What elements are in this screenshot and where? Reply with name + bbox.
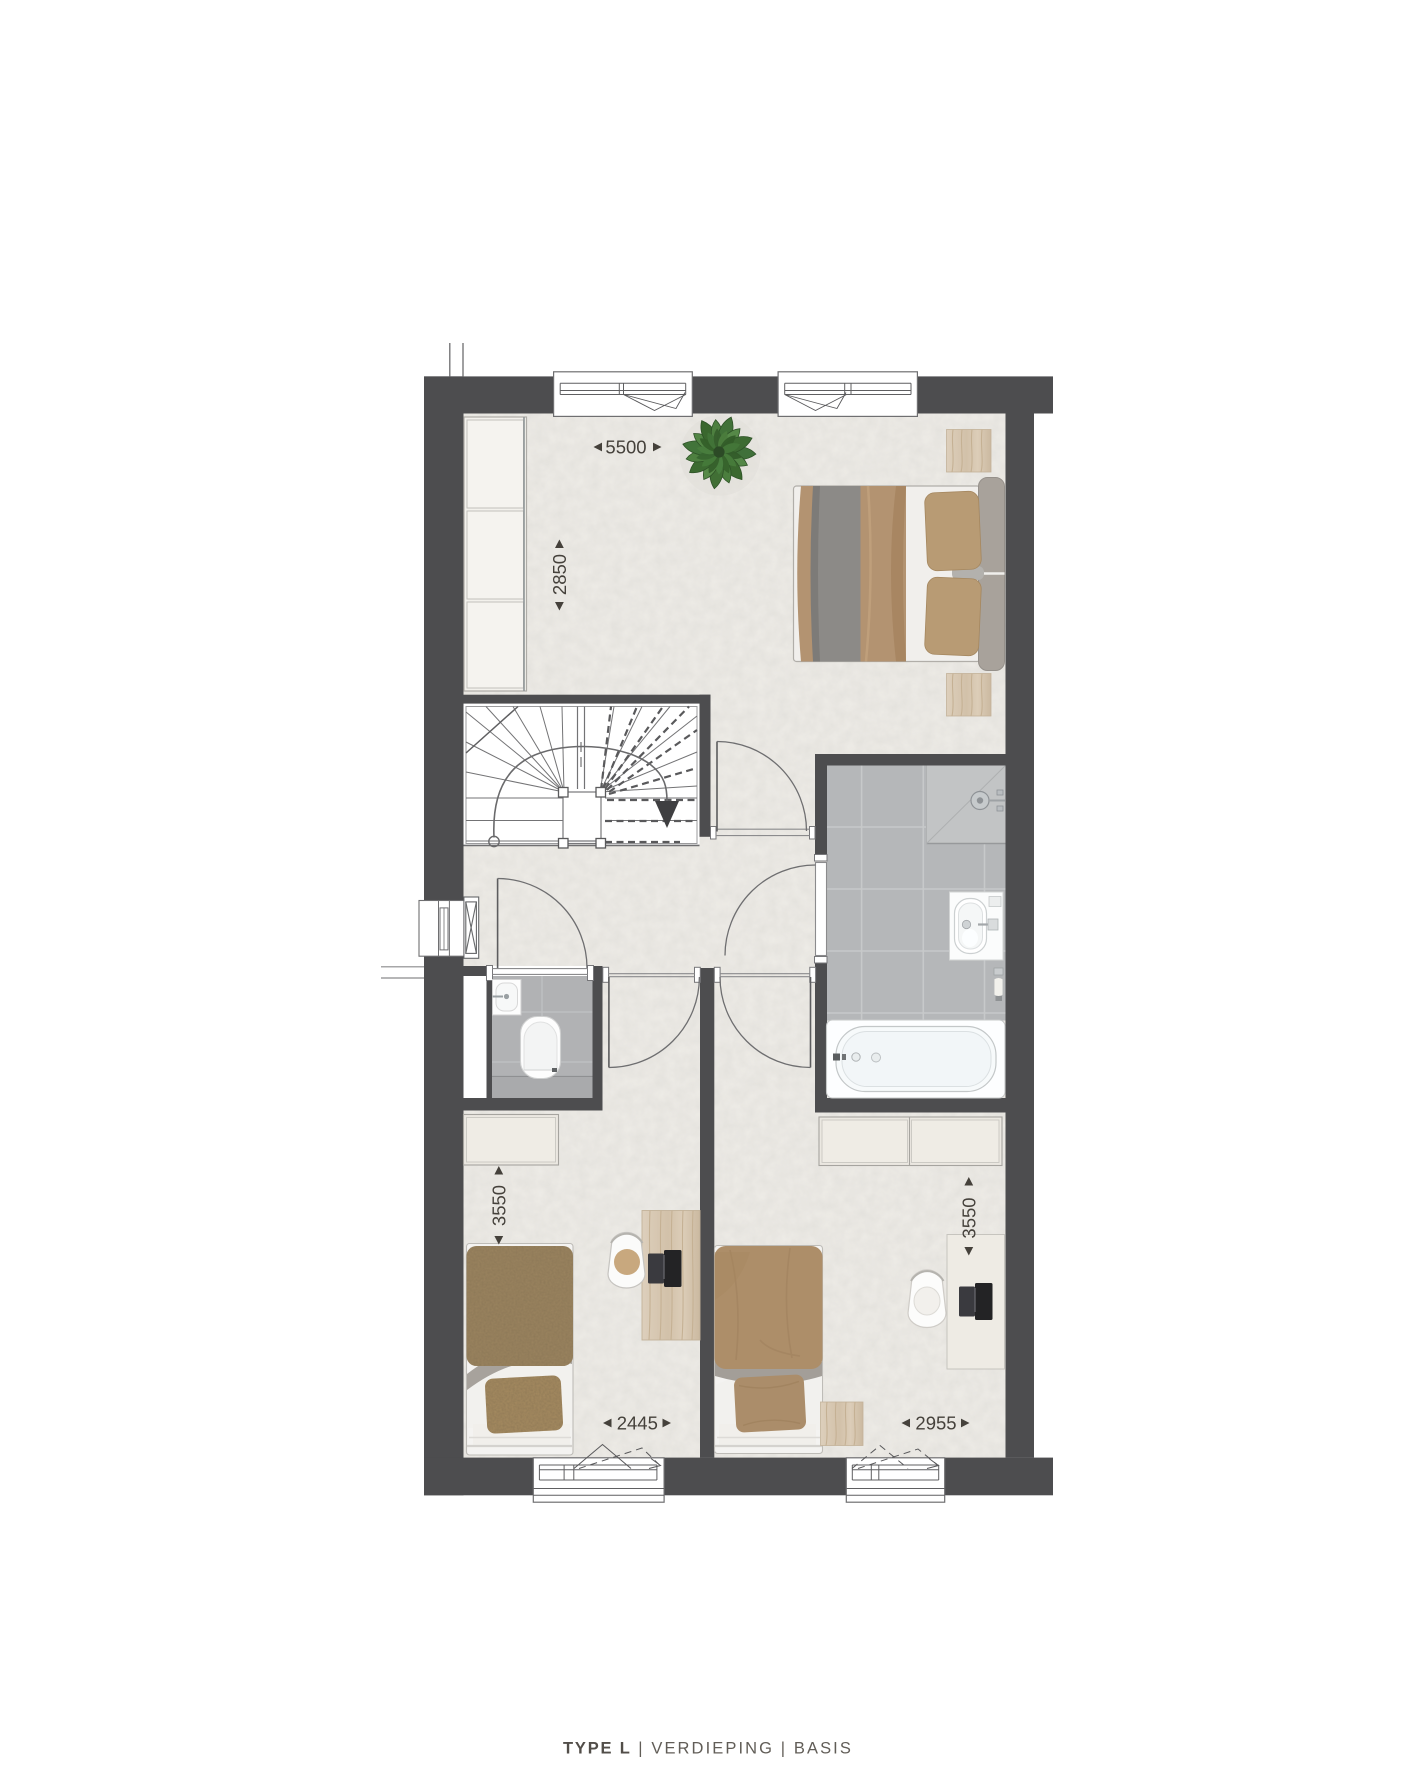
svg-text:3550: 3550	[959, 1197, 980, 1238]
svg-text:5500: 5500	[605, 437, 646, 458]
svg-text:2850: 2850	[549, 554, 570, 595]
svg-text:3550: 3550	[489, 1185, 510, 1226]
svg-text:2445: 2445	[617, 1413, 658, 1434]
svg-text:TYPE L | VERDIEPING | BASIS: TYPE L | VERDIEPING | BASIS	[563, 1740, 853, 1758]
svg-text:2955: 2955	[915, 1413, 956, 1434]
